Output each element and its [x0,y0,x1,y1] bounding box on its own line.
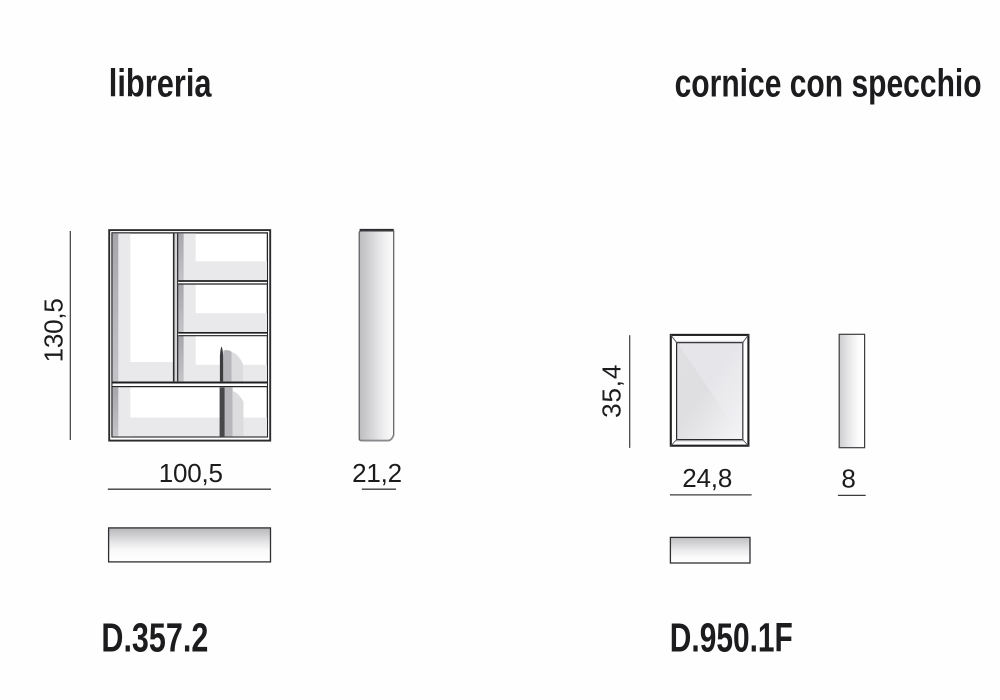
svg-text:130,5: 130,5 [38,298,68,362]
svg-text:libreria: libreria [109,62,212,105]
svg-text:8: 8 [841,464,855,494]
svg-text:100,5: 100,5 [159,458,223,488]
svg-text:D.357.2: D.357.2 [101,614,208,660]
svg-text:21,2: 21,2 [352,458,402,488]
svg-text:D.950.1F: D.950.1F [670,615,793,661]
svg-text:24,8: 24,8 [682,463,732,493]
svg-text:cornice con specchio: cornice con specchio [675,63,982,105]
svg-text:35,4: 35,4 [597,364,627,418]
